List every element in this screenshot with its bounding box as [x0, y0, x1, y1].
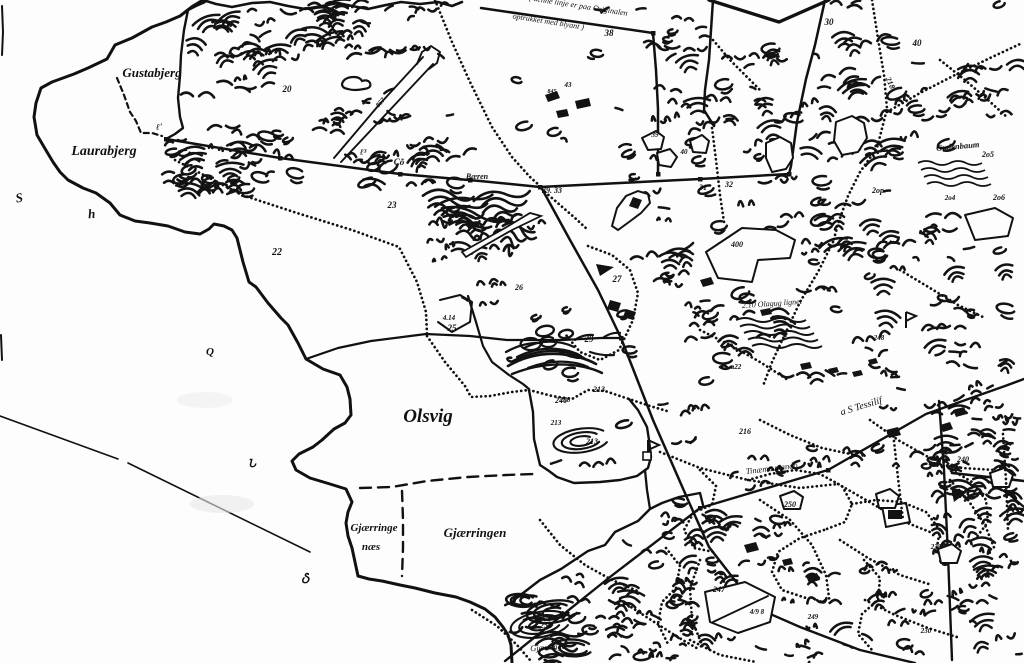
svg-text:26: 26 [514, 283, 523, 292]
svg-text:Gjærringen: Gjærringen [444, 525, 507, 540]
svg-text:ℓ': ℓ' [156, 122, 163, 132]
svg-text:213: 213 [592, 385, 605, 394]
svg-text:23: 23 [387, 200, 398, 210]
svg-text:247: 247 [712, 585, 726, 594]
svg-text:Ն: Ն [248, 458, 257, 470]
svg-text:25: 25 [447, 323, 458, 333]
svg-text:216: 216 [738, 427, 751, 436]
svg-text:Q: Q [206, 346, 214, 358]
svg-text:249: 249 [807, 613, 819, 621]
svg-text:2op: 2op [871, 186, 884, 195]
svg-text:30: 30 [824, 17, 835, 27]
svg-text:næs: næs [362, 541, 380, 553]
svg-text:2o4: 2o4 [944, 194, 956, 202]
svg-text:38: 38 [604, 28, 615, 38]
svg-text:29: 29 [584, 334, 595, 344]
svg-text:4.14: 4.14 [442, 314, 456, 322]
svg-text:32: 32 [724, 180, 733, 189]
svg-text:2o6: 2o6 [992, 193, 1005, 202]
svg-text:230: 230 [920, 627, 932, 635]
svg-text:a22: a22 [731, 363, 742, 371]
svg-text:213: 213 [585, 437, 598, 446]
svg-text:Cõ: Cõ [394, 157, 405, 167]
svg-text:Olsvig: Olsvig [403, 406, 453, 427]
svg-text:40: 40 [680, 148, 689, 156]
svg-text:h: h [87, 206, 96, 222]
svg-text:ℓ³: ℓ³ [360, 147, 367, 157]
svg-text:22: 22 [271, 247, 282, 258]
svg-text:298: 298 [559, 396, 571, 404]
svg-text:Gustabjerg: Gustabjerg [122, 65, 182, 80]
svg-text:39. 33: 39. 33 [541, 186, 562, 195]
svg-text:238: 238 [930, 543, 942, 551]
svg-text:Laurabjerg: Laurabjerg [70, 144, 136, 159]
svg-text:27: 27 [612, 274, 623, 284]
svg-text:4/9 8: 4/9 8 [749, 608, 765, 616]
svg-text:40: 40 [912, 38, 923, 48]
svg-text:31: 31 [698, 183, 707, 192]
svg-text:Bæren: Bæren [465, 172, 489, 181]
svg-text:248: 248 [873, 334, 885, 342]
svg-text:213: 213 [550, 419, 562, 427]
svg-text:20: 20 [282, 84, 293, 94]
svg-text:39: 39 [651, 131, 660, 139]
svg-text:250: 250 [783, 500, 796, 509]
svg-text:240: 240 [956, 455, 969, 464]
svg-text:256: 256 [539, 621, 552, 630]
svg-text:400: 400 [730, 240, 743, 249]
svg-text:Gjærringe: Gjærringe [350, 522, 397, 534]
svg-text:2o5: 2o5 [981, 150, 994, 159]
svg-text:43: 43 [564, 81, 573, 89]
svg-text:845: 845 [548, 89, 557, 95]
